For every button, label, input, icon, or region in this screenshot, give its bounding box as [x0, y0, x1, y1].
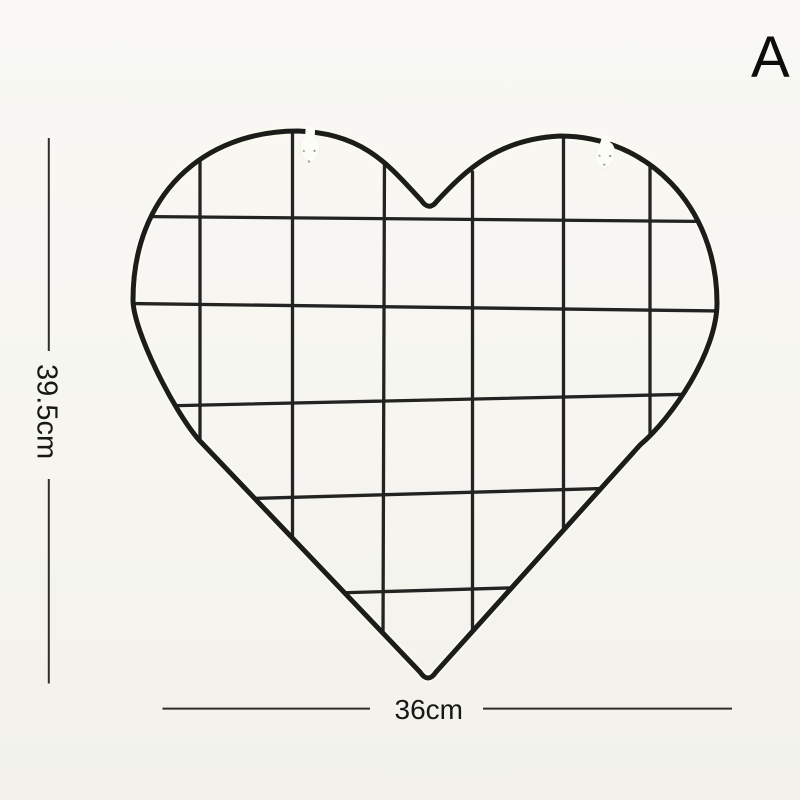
svg-text:A: A — [751, 25, 790, 90]
svg-text:36cm: 36cm — [395, 694, 463, 725]
svg-text:39.5cm: 39.5cm — [31, 364, 63, 459]
